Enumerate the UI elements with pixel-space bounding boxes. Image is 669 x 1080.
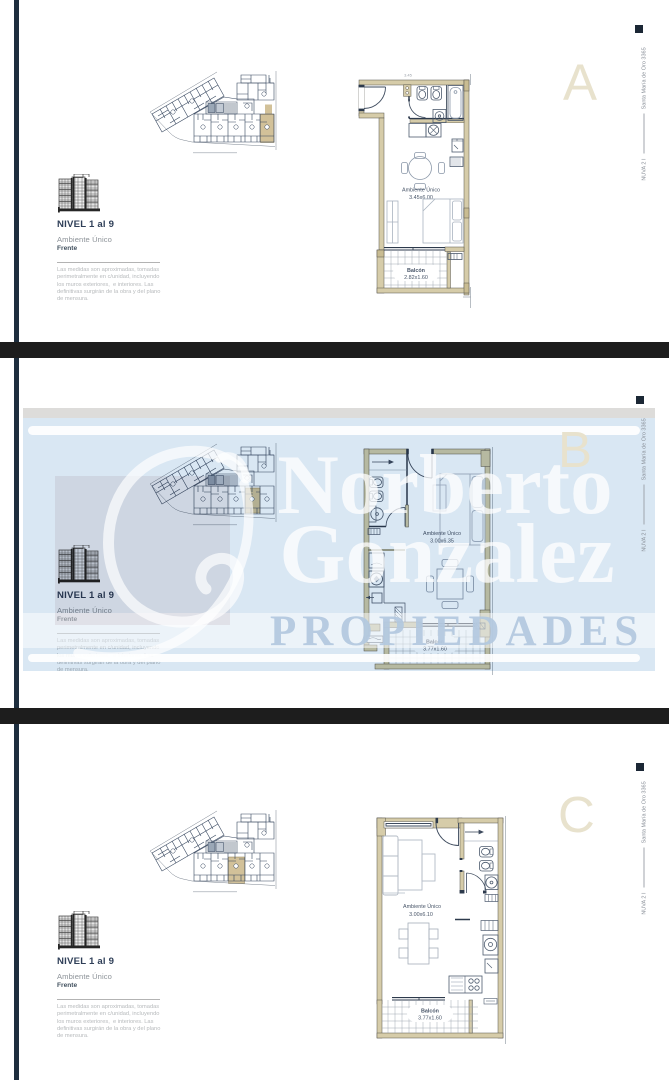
svg-text:Ambiente Único: Ambiente Único	[402, 187, 440, 194]
svg-text:Balcón: Balcón	[407, 268, 425, 274]
svg-text:Ambiente Único: Ambiente Único	[403, 903, 441, 910]
svg-text:3.77x1.60: 3.77x1.60	[418, 1016, 442, 1022]
svg-text:2.82x1.60: 2.82x1.60	[404, 275, 428, 281]
svg-text:3.45x6.00: 3.45x6.00	[409, 195, 433, 201]
svg-text:Balcón: Balcón	[421, 1009, 439, 1015]
svg-text:3.45: 3.45	[404, 73, 413, 78]
svg-text:3.00x6.10: 3.00x6.10	[409, 912, 433, 918]
